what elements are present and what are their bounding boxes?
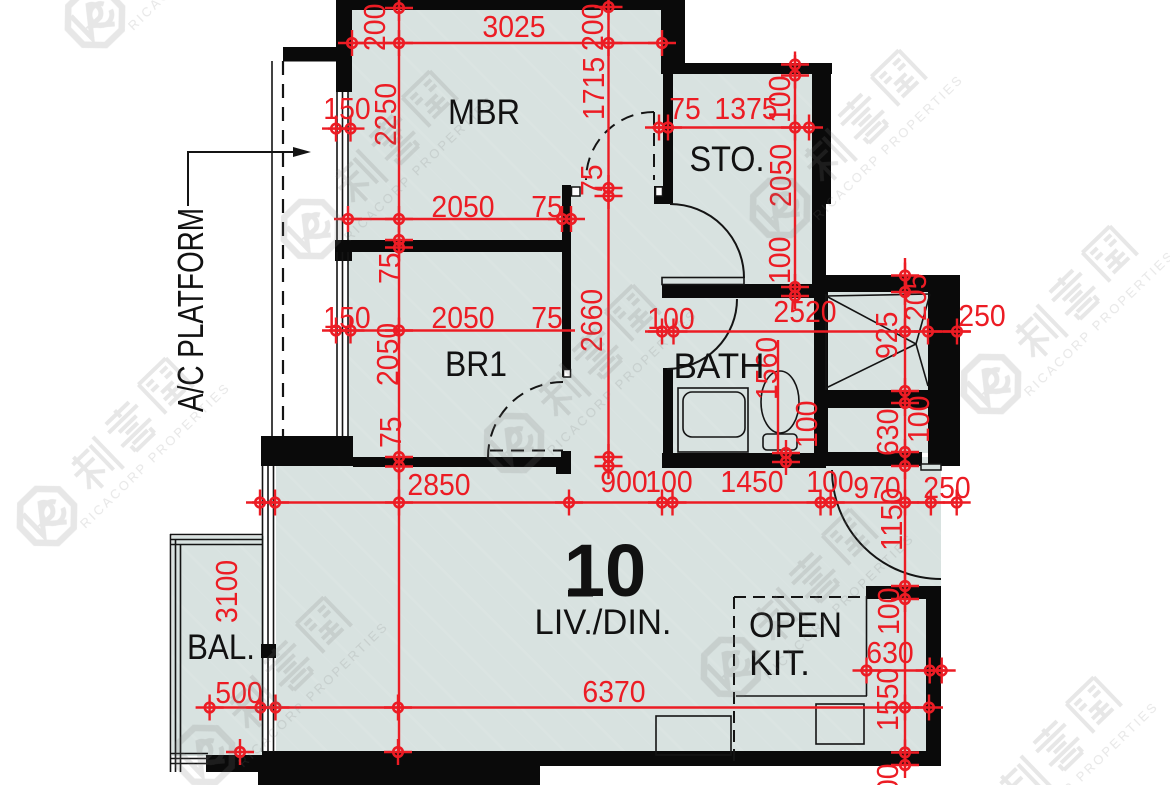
svg-text:75: 75 (373, 252, 407, 284)
svg-text:2850: 2850 (407, 468, 470, 502)
svg-text:STO.: STO. (690, 140, 765, 179)
svg-text:2050: 2050 (371, 323, 405, 386)
svg-text:75: 75 (531, 301, 563, 335)
svg-text:630: 630 (866, 636, 913, 670)
svg-text:200: 200 (576, 4, 610, 51)
svg-text:1715: 1715 (577, 57, 611, 120)
svg-text:75: 75 (669, 92, 701, 126)
svg-text:10: 10 (564, 529, 646, 612)
svg-text:200: 200 (358, 4, 392, 51)
svg-text:1450: 1450 (720, 465, 783, 499)
svg-text:BATH: BATH (674, 347, 765, 386)
svg-text:250: 250 (923, 471, 970, 505)
svg-text:2050: 2050 (431, 301, 494, 335)
svg-text:100: 100 (806, 465, 853, 499)
svg-text:BR1: BR1 (445, 345, 507, 384)
svg-text:150: 150 (323, 301, 370, 335)
svg-text:6370: 6370 (582, 675, 645, 709)
svg-text:100: 100 (645, 465, 692, 499)
svg-text:250: 250 (958, 299, 1005, 333)
svg-text:00: 00 (871, 763, 905, 785)
svg-text:BAL.: BAL. (187, 628, 255, 667)
svg-text:205: 205 (899, 274, 933, 321)
svg-text:75: 75 (531, 190, 563, 224)
svg-text:2520: 2520 (773, 295, 836, 329)
svg-text:75: 75 (575, 164, 609, 196)
svg-text:2250: 2250 (369, 83, 403, 146)
svg-text:150: 150 (323, 92, 370, 126)
svg-text:630: 630 (871, 409, 905, 456)
svg-text:100: 100 (790, 401, 824, 448)
svg-text:3025: 3025 (482, 10, 545, 44)
svg-text:100: 100 (763, 76, 797, 123)
svg-text:100: 100 (763, 237, 797, 284)
svg-text:1550: 1550 (871, 668, 905, 731)
svg-text:2050: 2050 (431, 190, 494, 224)
svg-text:900: 900 (600, 465, 647, 499)
svg-text:LIV./DIN.: LIV./DIN. (535, 603, 672, 642)
svg-text:3100: 3100 (210, 560, 244, 623)
svg-text:75: 75 (374, 416, 408, 448)
svg-text:100: 100 (872, 588, 906, 635)
svg-text:100: 100 (902, 396, 936, 443)
